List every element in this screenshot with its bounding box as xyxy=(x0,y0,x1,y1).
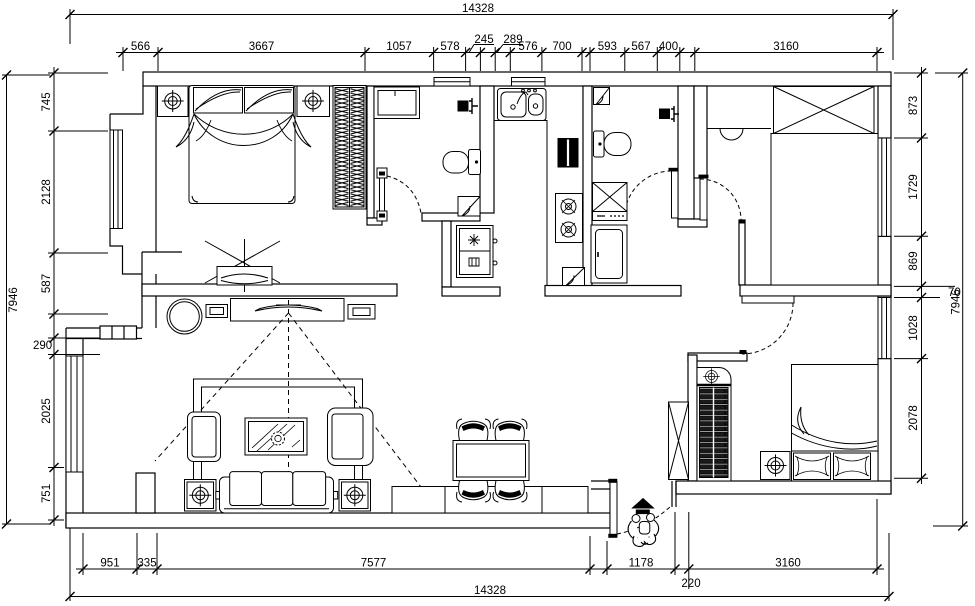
svg-text:593: 593 xyxy=(598,41,617,53)
svg-text:3160: 3160 xyxy=(775,558,801,570)
svg-text:587: 587 xyxy=(41,274,53,293)
svg-text:335: 335 xyxy=(137,558,156,570)
svg-text:578: 578 xyxy=(440,41,459,53)
svg-text:290: 290 xyxy=(33,340,52,352)
svg-text:3667: 3667 xyxy=(249,41,275,53)
svg-text:1729: 1729 xyxy=(908,174,920,200)
svg-text:951: 951 xyxy=(100,558,119,570)
svg-text:869: 869 xyxy=(908,251,920,270)
svg-text:1028: 1028 xyxy=(908,315,920,341)
svg-text:3160: 3160 xyxy=(773,41,799,53)
svg-text:7946: 7946 xyxy=(8,287,20,313)
svg-text:220: 220 xyxy=(681,578,700,590)
svg-text:7946: 7946 xyxy=(951,289,963,315)
svg-text:14328: 14328 xyxy=(474,585,506,597)
svg-text:567: 567 xyxy=(631,41,650,53)
svg-text:1178: 1178 xyxy=(629,558,654,570)
svg-text:566: 566 xyxy=(131,41,150,53)
svg-text:2025: 2025 xyxy=(41,398,53,424)
svg-text:700: 700 xyxy=(552,41,571,53)
svg-text:400: 400 xyxy=(659,41,678,53)
svg-text:2078: 2078 xyxy=(908,405,920,431)
svg-text:2128: 2128 xyxy=(41,179,53,205)
svg-text:576: 576 xyxy=(518,41,537,53)
svg-text:14328: 14328 xyxy=(462,3,494,15)
svg-text:1057: 1057 xyxy=(386,41,412,53)
svg-text:873: 873 xyxy=(908,96,920,115)
svg-text:745: 745 xyxy=(41,92,53,111)
svg-text:7577: 7577 xyxy=(361,558,387,570)
svg-text:751: 751 xyxy=(41,484,53,503)
